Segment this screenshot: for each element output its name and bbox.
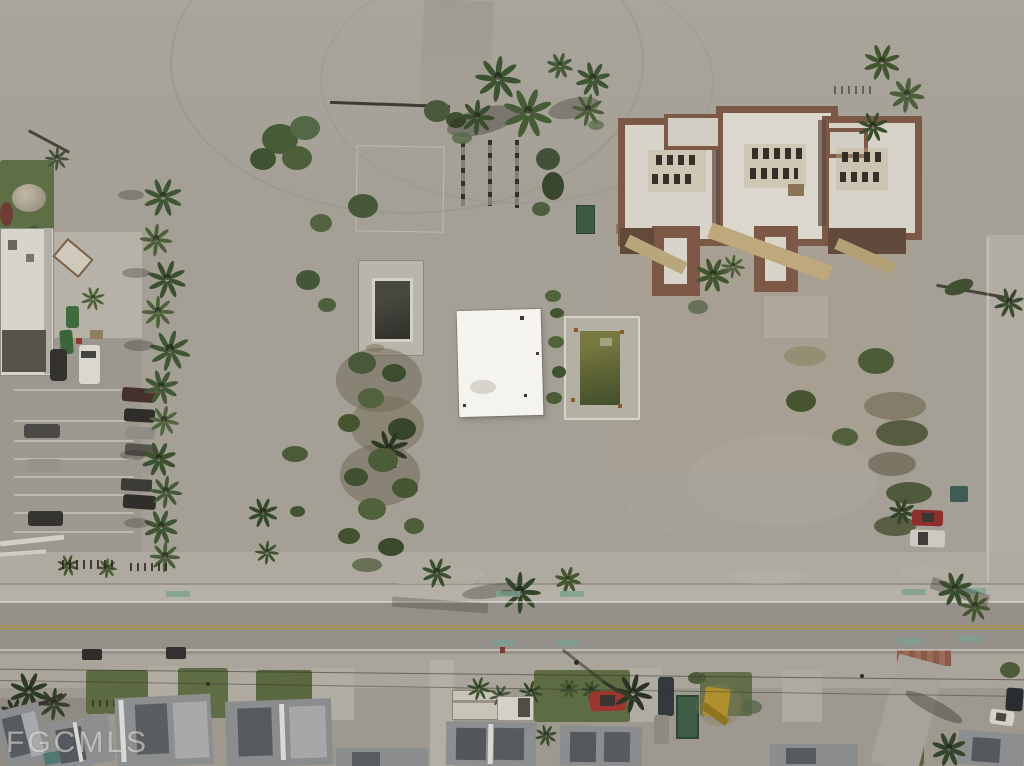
condo-roof-b7-dark-2 [604,732,631,762]
palm-center [904,90,910,96]
grass-tuft-1 [452,132,472,144]
small-pool-water [372,278,413,342]
road-edge-line-top [0,601,1024,603]
condo-roof-b4-light [289,705,327,758]
slab-speck-1 [520,316,524,320]
black-car-lot-top [50,349,67,381]
east-debris-3 [868,452,916,476]
bike-mark-road-3 [898,638,922,644]
strip-bush-7 [344,468,368,486]
green-shed [576,205,595,234]
bike-mark-walk-3 [560,591,584,597]
berm-mound-2 [726,570,810,584]
condo-roof-b8-dark [786,748,816,764]
slab-smudge [470,380,496,394]
teal-object [950,486,968,502]
palm-row-3 [150,260,184,294]
green-pool-rust-4 [618,404,622,408]
condo-roof-b7-dark-1 [570,732,597,762]
road-yellow-line-1 [0,625,1024,627]
post-row-1 [461,142,465,206]
topright-palm-3 [860,112,886,138]
berm-palm-1 [424,558,450,584]
palm-center-3 [462,100,492,130]
parking-line-2 [14,420,134,422]
bottomright-suv [1005,687,1024,711]
dark-suv-south [658,677,674,716]
palm-shadow-1 [118,190,144,200]
scene-layer [0,0,1024,766]
palm-center [870,122,875,127]
gray-car-south [654,715,669,744]
green-pool-rust-1 [574,328,578,332]
mls-watermark: FGCMLS [6,726,149,760]
red-car-east-glass [922,513,934,522]
parking-line-5 [14,476,134,478]
condo-roof-b3-light [173,701,210,759]
palm-center [161,416,166,421]
palm-center [710,270,716,276]
palm-center [153,235,159,241]
white-truck-bed [518,698,530,717]
parking-line-8 [14,531,134,533]
green-pool-rust-3 [571,398,575,402]
veg-cluster-a3 [250,148,276,170]
white-building-dark-bays [2,330,46,372]
palm-center-5 [578,62,608,92]
palm-center [590,74,596,80]
road-yellow-line-2 [0,628,1024,630]
ac-units-left-1 [656,155,700,165]
courtyard-bush-4 [688,300,708,314]
car-row-east-6 [121,478,153,492]
palm-center [163,487,169,493]
palm-center [158,382,164,388]
red-car-south-glass [600,695,615,706]
veg-east-of-posts-1 [536,148,560,170]
palm-center [158,522,164,528]
strip-south-bush [352,558,382,572]
bike-mark-walk-2 [496,591,520,597]
palm-row-6 [146,370,176,400]
veg-cluster-a4 [282,146,312,170]
ac-units-right-1 [842,152,886,162]
condo-roof-b6-dark-2 [494,728,525,761]
bike-mark-road-2 [556,640,580,646]
palm-center [585,105,591,111]
shoulder-truck [82,649,102,660]
palm-row-1 [146,178,180,212]
aerial-photo: FGCMLS [0,0,1024,766]
palm-center [166,344,173,351]
utility-pole-3 [860,674,864,678]
strip-bush-10 [338,528,360,544]
topright-debris [834,86,874,94]
small-red-marker [500,647,505,653]
pallet-stack [90,330,103,339]
road-edge-palm-2 [962,592,988,618]
palm-shadow-4 [120,450,146,460]
berm-debris-row-1 [62,560,114,569]
road-edge-line-bottom [0,649,1024,651]
palm-row-4 [144,296,172,324]
courtyard-palm-2 [722,254,744,276]
light-sand-patch-2 [626,470,756,534]
strip-bush-6 [368,448,398,472]
shoulder-car [166,647,186,659]
post-row-3 [515,140,519,208]
green-pool-step [600,338,612,346]
palm-row-7 [151,406,177,432]
condo-roof-b6-dark-1 [456,728,487,761]
bottomright-white-car-glass [995,712,1006,721]
east-palm [890,498,914,522]
green-pool-rust-2 [620,330,624,334]
strip-bush-11 [378,538,404,556]
staging-tree [82,286,104,308]
berm-debris-row-2 [130,563,168,571]
building-vent-1 [8,240,17,250]
strip-bush-4 [338,414,360,432]
parking-line-3 [14,440,134,442]
palm-center-2 [506,88,550,132]
utility-pole-1 [206,682,210,686]
green-equipment-1 [66,306,79,328]
palm-row-9 [152,476,180,504]
topright-palm-2 [892,78,922,108]
strip-bush-2 [382,364,406,382]
palm-center [155,307,161,313]
bottomright-bush [1000,662,1020,678]
slab-speck-2 [524,394,527,397]
condo-roof-b5 [336,748,428,766]
fallen-palm-right-head [996,288,1022,314]
palm-center [952,584,958,590]
strip-bush-3 [358,388,384,408]
white-pickup-cab [918,532,928,545]
berm-palm-3 [556,566,580,590]
palm-shadow-2 [122,268,150,278]
bike-mark-walk-1 [166,591,190,597]
palm-row-8 [144,442,174,472]
palm-row-5 [152,330,188,366]
condo-notch-left [664,114,722,150]
condo-roof-b9-dark [971,737,1001,763]
tuft-east-slab-1 [545,290,561,302]
bottomright-palm [934,732,964,762]
veg-cluster-a2 [290,116,320,140]
strip-bush-8 [392,478,418,498]
ac-units-mid-2 [750,168,798,179]
veg-east-of-posts-3 [532,202,550,216]
mid-palm-1 [250,498,276,524]
palm-center-4 [548,52,572,76]
car-row-west-2 [27,459,61,472]
condo-roof-b6-palm [536,724,556,744]
grass-tuft-2 [588,120,604,130]
tuft-east-slab-2 [550,308,564,318]
palm-center [972,602,977,607]
condo-roof-b4-dark [237,707,273,756]
foundation-outline [355,145,444,233]
palm-center [156,454,162,460]
slab-speck-4 [536,352,539,355]
ac-units-mid-1 [752,148,802,159]
mid-bush-1 [282,446,308,462]
south-bush-2 [740,700,762,714]
condo-roof-b6-ridge [488,724,494,764]
mid-bush-2 [290,506,305,517]
condo-roof-b5-dark [352,752,380,766]
condo-gap-2 [818,120,826,226]
white-van-windshield [81,351,96,358]
building-vent-2 [26,254,34,262]
mid-palm-2 [256,540,278,562]
veg-cluster-c1 [348,194,378,218]
palm-row-2 [142,224,170,252]
slab-speck-3 [463,404,466,407]
car-row-west-3 [28,511,63,526]
bike-mark-walk-4 [902,589,926,595]
veg-cluster-d2 [318,298,336,312]
palm-shadow-5 [124,518,150,528]
palm-center [544,732,548,736]
palm-center [474,112,480,118]
roof-equipment [788,184,804,196]
courtyard-bush-2 [786,390,816,412]
palm-center [946,744,952,750]
boulder [12,184,46,212]
palm-center [1006,298,1011,303]
south-palm-4 [560,678,578,696]
right-walk-line [987,238,989,582]
veg-cluster-d1 [296,270,320,290]
fallen-palm-head-topleft [46,146,68,168]
palm-center-6 [574,94,602,122]
courtyard-pad [764,296,828,338]
white-lot-slab [457,309,544,417]
bike-mark-road-1 [492,640,516,646]
topright-palm-1 [866,44,898,76]
bike-mark-road-4 [958,636,982,642]
veg-east-of-posts-2 [542,172,564,200]
palm-row-10 [146,510,176,540]
palm-center [494,72,502,80]
strip-bush-1 [348,352,376,374]
east-debris-2 [876,420,928,446]
strip-bush-12 [404,518,424,534]
east-debris-1 [864,392,926,420]
palm-center [162,552,167,557]
south-bush-1 [688,672,706,684]
car-row-west-1 [24,424,60,438]
parking-line-1 [14,389,134,391]
veg-cluster-c2 [310,214,332,232]
parking-line-6 [14,494,134,496]
courtyard-bush-1 [858,348,894,374]
red-bush [0,202,13,226]
tuft-east-slab-5 [546,392,562,404]
palm-shadow-3 [124,340,154,351]
ac-units-left-2 [652,174,694,184]
palm-center [260,508,265,513]
post-row-2 [488,140,492,206]
palm-center [434,568,439,573]
tuft-east-slab-3 [548,336,564,348]
strip-bush-9 [358,498,386,520]
ac-units-right-2 [840,172,880,182]
tuft-east-slab-4 [552,366,566,378]
courtyard-bush-pale [784,346,826,366]
